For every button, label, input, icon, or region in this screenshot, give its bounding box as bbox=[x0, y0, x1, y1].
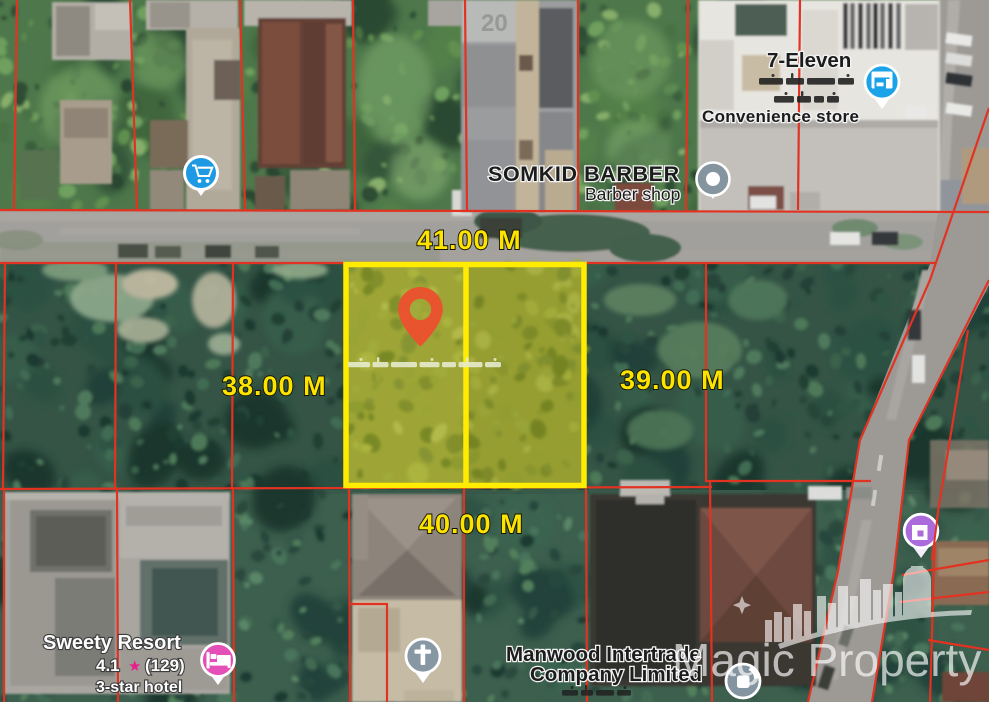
svg-text:Sweety Resort: Sweety Resort bbox=[43, 632, 181, 654]
svg-text:7-Eleven: 7-Eleven bbox=[767, 49, 851, 72]
svg-text:Magic Property: Magic Property bbox=[672, 634, 981, 686]
svg-text:41.00 M: 41.00 M bbox=[417, 225, 522, 255]
svg-text:Barber shop: Barber shop bbox=[585, 184, 680, 204]
svg-text:40.00 M: 40.00 M bbox=[419, 509, 524, 539]
svg-text:★: ★ bbox=[128, 658, 141, 675]
svg-text:(129): (129) bbox=[145, 656, 185, 675]
svg-text:20: 20 bbox=[481, 10, 508, 37]
svg-text:39.00 M: 39.00 M bbox=[620, 365, 725, 395]
svg-text:4.1: 4.1 bbox=[96, 656, 120, 675]
svg-text:SOMKID BARBER: SOMKID BARBER bbox=[488, 162, 680, 186]
svg-text:Convenience store: Convenience store bbox=[702, 107, 859, 126]
svg-text:3-star hotel: 3-star hotel bbox=[96, 679, 182, 696]
svg-text:38.00 M: 38.00 M bbox=[222, 371, 327, 401]
